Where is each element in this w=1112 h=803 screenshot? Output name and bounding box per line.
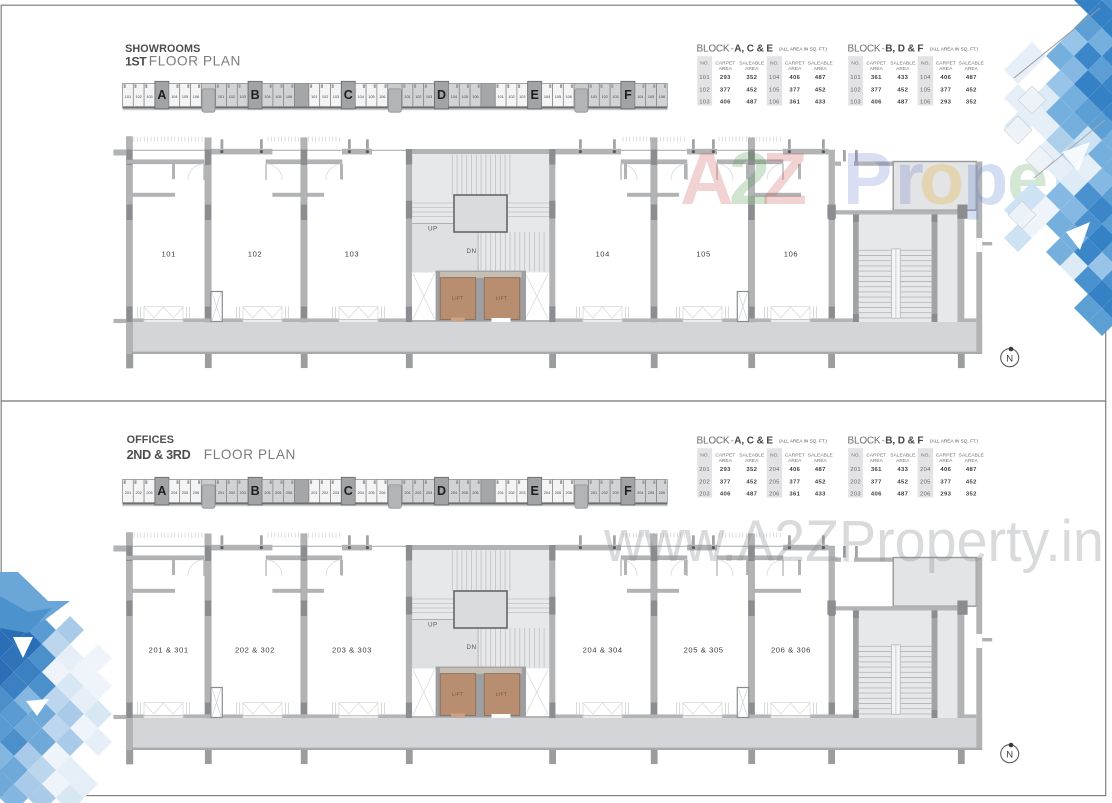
- svg-text:452: 452: [815, 479, 826, 485]
- svg-text:A: A: [157, 88, 166, 102]
- svg-text:352: 352: [746, 467, 757, 473]
- svg-text:1ST: 1ST: [125, 55, 147, 69]
- svg-text:D: D: [437, 88, 446, 102]
- svg-text:SALEABLE: SALEABLE: [739, 453, 765, 459]
- svg-text:452: 452: [966, 479, 977, 485]
- svg-text:293: 293: [720, 467, 731, 473]
- svg-text:101: 101: [161, 249, 175, 258]
- svg-text:205: 205: [182, 491, 188, 495]
- svg-text:N: N: [1006, 749, 1013, 760]
- svg-text:CARPET: CARPET: [866, 61, 886, 67]
- svg-text:102: 102: [699, 87, 710, 93]
- svg-text:LIFT: LIFT: [452, 692, 463, 698]
- svg-text:AREA: AREA: [870, 66, 884, 72]
- svg-text:E: E: [531, 484, 539, 498]
- svg-text:202: 202: [508, 491, 514, 495]
- svg-text:205: 205: [275, 491, 281, 495]
- svg-text:SALEABLE: SALEABLE: [959, 61, 985, 67]
- svg-text:AREA: AREA: [814, 66, 828, 72]
- svg-text:205: 205: [648, 491, 654, 495]
- svg-text:203: 203: [333, 491, 339, 495]
- svg-text:202: 202: [229, 491, 235, 495]
- svg-text:101: 101: [699, 75, 710, 81]
- svg-text:(ALL AREA IN SQ. FT.): (ALL AREA IN SQ. FT.): [779, 47, 827, 52]
- svg-text:A: A: [680, 137, 733, 220]
- svg-text:C: C: [344, 484, 353, 498]
- svg-text:AREA: AREA: [745, 66, 759, 72]
- svg-text:205: 205: [920, 479, 931, 485]
- svg-text:406: 406: [789, 467, 800, 473]
- svg-text:104: 104: [595, 249, 609, 258]
- svg-text:204 & 304: 204 & 304: [583, 645, 623, 654]
- svg-text:BLOCK: BLOCK: [848, 43, 881, 54]
- svg-text:377: 377: [720, 479, 731, 485]
- svg-text:105: 105: [769, 87, 780, 93]
- svg-text:487: 487: [897, 99, 908, 105]
- svg-text:433: 433: [897, 467, 908, 473]
- svg-text:-: -: [882, 435, 885, 445]
- svg-text:CARPET: CARPET: [715, 453, 735, 459]
- svg-text:AREA: AREA: [896, 66, 910, 72]
- svg-text:NO.: NO.: [921, 61, 930, 67]
- svg-text:206: 206: [659, 491, 665, 495]
- svg-text:203: 203: [240, 491, 246, 495]
- svg-text:BLOCK: BLOCK: [697, 435, 730, 446]
- svg-text:487: 487: [815, 75, 826, 81]
- svg-text:293: 293: [940, 99, 951, 105]
- svg-text:2ND & 3RD: 2ND & 3RD: [127, 448, 191, 462]
- svg-text:NO.: NO.: [700, 61, 709, 67]
- svg-text:SALEABLE: SALEABLE: [890, 61, 916, 67]
- svg-text:102: 102: [508, 95, 514, 99]
- svg-text:101: 101: [404, 95, 410, 99]
- svg-text:406: 406: [720, 99, 731, 105]
- svg-text:361: 361: [789, 491, 800, 497]
- svg-text:LIFT: LIFT: [496, 296, 507, 302]
- svg-text:201: 201: [311, 491, 317, 495]
- svg-text:AREA: AREA: [965, 66, 979, 72]
- svg-text:352: 352: [966, 99, 977, 105]
- svg-text:102: 102: [850, 87, 861, 93]
- svg-text:293: 293: [720, 75, 731, 81]
- svg-text:406: 406: [871, 99, 882, 105]
- svg-text:102: 102: [415, 95, 421, 99]
- svg-text:452: 452: [746, 479, 757, 485]
- svg-text:CARPET: CARPET: [866, 453, 886, 459]
- svg-text:OFFICES: OFFICES: [127, 434, 175, 446]
- svg-text:103: 103: [699, 99, 710, 105]
- svg-text:377: 377: [789, 87, 800, 93]
- svg-text:AREA: AREA: [788, 66, 802, 72]
- svg-text:377: 377: [940, 479, 951, 485]
- svg-text:UP: UP: [428, 622, 438, 629]
- svg-text:202: 202: [850, 479, 861, 485]
- svg-text:201: 201: [699, 467, 710, 473]
- svg-text:A, C & E: A, C & E: [734, 43, 773, 54]
- svg-text:105: 105: [696, 249, 710, 258]
- svg-text:104: 104: [358, 95, 364, 99]
- svg-text:203: 203: [426, 491, 432, 495]
- svg-text:101: 101: [850, 75, 861, 81]
- svg-text:103: 103: [612, 95, 618, 99]
- svg-text:205: 205: [769, 479, 780, 485]
- svg-text:104: 104: [637, 95, 643, 99]
- svg-text:106: 106: [784, 249, 798, 258]
- svg-text:NO.: NO.: [770, 61, 779, 67]
- svg-text:AREA: AREA: [745, 458, 759, 464]
- svg-text:B, D & F: B, D & F: [885, 435, 923, 446]
- svg-text:204: 204: [637, 491, 643, 495]
- svg-text:A, C & E: A, C & E: [734, 435, 773, 446]
- svg-text:201: 201: [218, 491, 224, 495]
- svg-text:105: 105: [648, 95, 654, 99]
- svg-text:SALEABLE: SALEABLE: [890, 453, 916, 459]
- svg-text:487: 487: [897, 491, 908, 497]
- svg-text:F: F: [624, 484, 632, 498]
- svg-text:204: 204: [171, 491, 177, 495]
- svg-text:204: 204: [544, 491, 550, 495]
- svg-text:(ALL AREA IN SQ. FT.): (ALL AREA IN SQ. FT.): [930, 47, 978, 52]
- svg-text:205: 205: [368, 491, 374, 495]
- svg-text:103: 103: [333, 95, 339, 99]
- svg-text:206: 206: [920, 491, 931, 497]
- svg-text:CARPET: CARPET: [715, 61, 735, 67]
- svg-text:206: 206: [193, 491, 199, 495]
- svg-text:201: 201: [591, 491, 597, 495]
- svg-text:p: p: [963, 137, 1008, 220]
- svg-text:LIFT: LIFT: [452, 296, 463, 302]
- svg-text:104: 104: [264, 95, 270, 99]
- svg-text:BLOCK: BLOCK: [848, 435, 881, 446]
- svg-text:406: 406: [940, 467, 951, 473]
- svg-text:206 & 306: 206 & 306: [771, 645, 811, 654]
- svg-text:452: 452: [746, 87, 757, 93]
- svg-text:N: N: [1006, 353, 1013, 364]
- svg-text:AREA: AREA: [896, 458, 910, 464]
- svg-text:(ALL AREA IN SQ. FT.): (ALL AREA IN SQ. FT.): [779, 439, 827, 444]
- svg-text:106: 106: [920, 99, 931, 105]
- svg-text:AREA: AREA: [814, 458, 828, 464]
- svg-text:104: 104: [171, 95, 177, 99]
- svg-text:202: 202: [602, 491, 608, 495]
- svg-text:102: 102: [322, 95, 328, 99]
- svg-text:203 & 303: 203 & 303: [332, 645, 372, 654]
- svg-text:105: 105: [275, 95, 281, 99]
- svg-text:105: 105: [368, 95, 374, 99]
- svg-text:NO.: NO.: [921, 453, 930, 459]
- svg-text:205 & 305: 205 & 305: [684, 645, 724, 654]
- svg-text:www.A2ZProperty.in: www.A2ZProperty.in: [603, 509, 1104, 574]
- svg-text:203: 203: [850, 491, 861, 497]
- svg-text:AREA: AREA: [965, 458, 979, 464]
- svg-text:106: 106: [193, 95, 199, 99]
- svg-text:-: -: [731, 43, 734, 53]
- svg-text:406: 406: [720, 491, 731, 497]
- svg-text:377: 377: [940, 87, 951, 93]
- svg-text:A: A: [157, 484, 166, 498]
- svg-text:203: 203: [699, 491, 710, 497]
- svg-text:406: 406: [871, 491, 882, 497]
- svg-text:103: 103: [426, 95, 432, 99]
- svg-text:102: 102: [136, 95, 142, 99]
- svg-text:CARPET: CARPET: [936, 61, 956, 67]
- svg-text:433: 433: [897, 75, 908, 81]
- svg-text:361: 361: [871, 467, 882, 473]
- svg-text:102: 102: [248, 249, 262, 258]
- svg-text:102: 102: [229, 95, 235, 99]
- svg-text:104: 104: [769, 75, 780, 81]
- svg-text:487: 487: [746, 99, 757, 105]
- svg-text:E: E: [531, 88, 539, 102]
- svg-text:C: C: [344, 88, 353, 102]
- svg-text:103: 103: [850, 99, 861, 105]
- svg-text:487: 487: [966, 75, 977, 81]
- svg-text:o: o: [919, 137, 964, 220]
- svg-text:101: 101: [125, 95, 131, 99]
- svg-text:AREA: AREA: [870, 458, 884, 464]
- svg-text:206: 206: [566, 491, 572, 495]
- svg-text:LIFT: LIFT: [496, 692, 507, 698]
- svg-text:103: 103: [240, 95, 246, 99]
- svg-text:487: 487: [815, 467, 826, 473]
- svg-text:B: B: [251, 484, 260, 498]
- svg-text:206: 206: [379, 491, 385, 495]
- svg-text:204: 204: [451, 491, 457, 495]
- svg-text:377: 377: [789, 479, 800, 485]
- svg-text:105: 105: [920, 87, 931, 93]
- svg-text:206: 206: [769, 491, 780, 497]
- svg-text:205: 205: [555, 491, 561, 495]
- svg-text:452: 452: [815, 87, 826, 93]
- svg-text:D: D: [437, 484, 446, 498]
- svg-text:377: 377: [871, 87, 882, 93]
- svg-text:104: 104: [544, 95, 550, 99]
- svg-text:203: 203: [612, 491, 618, 495]
- svg-text:205: 205: [462, 491, 468, 495]
- svg-text:-: -: [882, 43, 885, 53]
- svg-text:377: 377: [871, 479, 882, 485]
- svg-text:103: 103: [345, 249, 359, 258]
- svg-text:105: 105: [462, 95, 468, 99]
- svg-text:SALEABLE: SALEABLE: [739, 61, 765, 67]
- svg-text:204: 204: [920, 467, 931, 473]
- svg-text:487: 487: [746, 491, 757, 497]
- svg-text:433: 433: [815, 491, 826, 497]
- svg-text:202 & 302: 202 & 302: [235, 645, 275, 654]
- svg-text:P: P: [843, 137, 892, 220]
- svg-text:352: 352: [746, 75, 757, 81]
- svg-text:104: 104: [451, 95, 457, 99]
- svg-text:BLOCK: BLOCK: [697, 43, 730, 54]
- svg-text:SALEABLE: SALEABLE: [808, 61, 834, 67]
- svg-text:202: 202: [322, 491, 328, 495]
- svg-text:AREA: AREA: [719, 66, 733, 72]
- svg-text:204: 204: [264, 491, 270, 495]
- svg-text:202: 202: [699, 479, 710, 485]
- svg-text:201 & 301: 201 & 301: [149, 645, 189, 654]
- svg-text:352: 352: [966, 491, 977, 497]
- svg-text:106: 106: [286, 95, 292, 99]
- svg-text:CARPET: CARPET: [936, 453, 956, 459]
- svg-text:AREA: AREA: [939, 458, 953, 464]
- svg-text:105: 105: [182, 95, 188, 99]
- svg-text:206: 206: [286, 491, 292, 495]
- svg-text:CARPET: CARPET: [785, 453, 805, 459]
- svg-text:361: 361: [789, 99, 800, 105]
- svg-text:102: 102: [602, 95, 608, 99]
- svg-text:B, D & F: B, D & F: [885, 43, 923, 54]
- svg-text:CARPET: CARPET: [785, 61, 805, 67]
- svg-text:103: 103: [146, 95, 152, 99]
- svg-text:487: 487: [966, 467, 977, 473]
- svg-text:B: B: [251, 88, 260, 102]
- svg-text:201: 201: [125, 491, 131, 495]
- svg-text:293: 293: [940, 491, 951, 497]
- svg-text:452: 452: [897, 87, 908, 93]
- svg-text:433: 433: [815, 99, 826, 105]
- svg-text:101: 101: [218, 95, 224, 99]
- svg-text:406: 406: [789, 75, 800, 81]
- svg-text:NO.: NO.: [851, 453, 860, 459]
- svg-text:203: 203: [519, 491, 525, 495]
- svg-text:106: 106: [472, 95, 478, 99]
- svg-text:FLOOR PLAN: FLOOR PLAN: [149, 54, 241, 69]
- svg-text:104: 104: [920, 75, 931, 81]
- svg-text:203: 203: [146, 491, 152, 495]
- svg-text:204: 204: [769, 467, 780, 473]
- svg-text:101: 101: [591, 95, 597, 99]
- svg-text:DN: DN: [467, 248, 477, 255]
- svg-text:NO.: NO.: [770, 453, 779, 459]
- svg-text:361: 361: [871, 75, 882, 81]
- svg-text:(ALL AREA IN SQ. FT.): (ALL AREA IN SQ. FT.): [930, 439, 978, 444]
- svg-text:452: 452: [897, 479, 908, 485]
- svg-text:452: 452: [966, 87, 977, 93]
- svg-text:201: 201: [850, 467, 861, 473]
- svg-text:AREA: AREA: [719, 458, 733, 464]
- svg-text:NO.: NO.: [851, 61, 860, 67]
- svg-text:-: -: [731, 435, 734, 445]
- svg-text:106: 106: [379, 95, 385, 99]
- svg-text:SALEABLE: SALEABLE: [959, 453, 985, 459]
- svg-text:201: 201: [404, 491, 410, 495]
- svg-text:106: 106: [566, 95, 572, 99]
- svg-text:101: 101: [311, 95, 317, 99]
- svg-text:206: 206: [472, 491, 478, 495]
- svg-text:204: 204: [358, 491, 364, 495]
- svg-text:377: 377: [720, 87, 731, 93]
- svg-text:105: 105: [555, 95, 561, 99]
- svg-text:202: 202: [415, 491, 421, 495]
- svg-text:406: 406: [940, 75, 951, 81]
- svg-text:AREA: AREA: [939, 66, 953, 72]
- svg-text:103: 103: [519, 95, 525, 99]
- svg-text:FLOOR PLAN: FLOOR PLAN: [204, 447, 296, 462]
- svg-text:DN: DN: [467, 644, 477, 651]
- svg-text:106: 106: [659, 95, 665, 99]
- svg-text:UP: UP: [428, 226, 438, 233]
- svg-text:106: 106: [769, 99, 780, 105]
- svg-text:NO.: NO.: [700, 453, 709, 459]
- svg-text:AREA: AREA: [788, 458, 802, 464]
- svg-text:101: 101: [498, 95, 504, 99]
- svg-text:202: 202: [136, 491, 142, 495]
- svg-text:F: F: [624, 88, 632, 102]
- svg-text:SALEABLE: SALEABLE: [808, 453, 834, 459]
- svg-text:201: 201: [498, 491, 504, 495]
- svg-text:Z: Z: [762, 137, 807, 220]
